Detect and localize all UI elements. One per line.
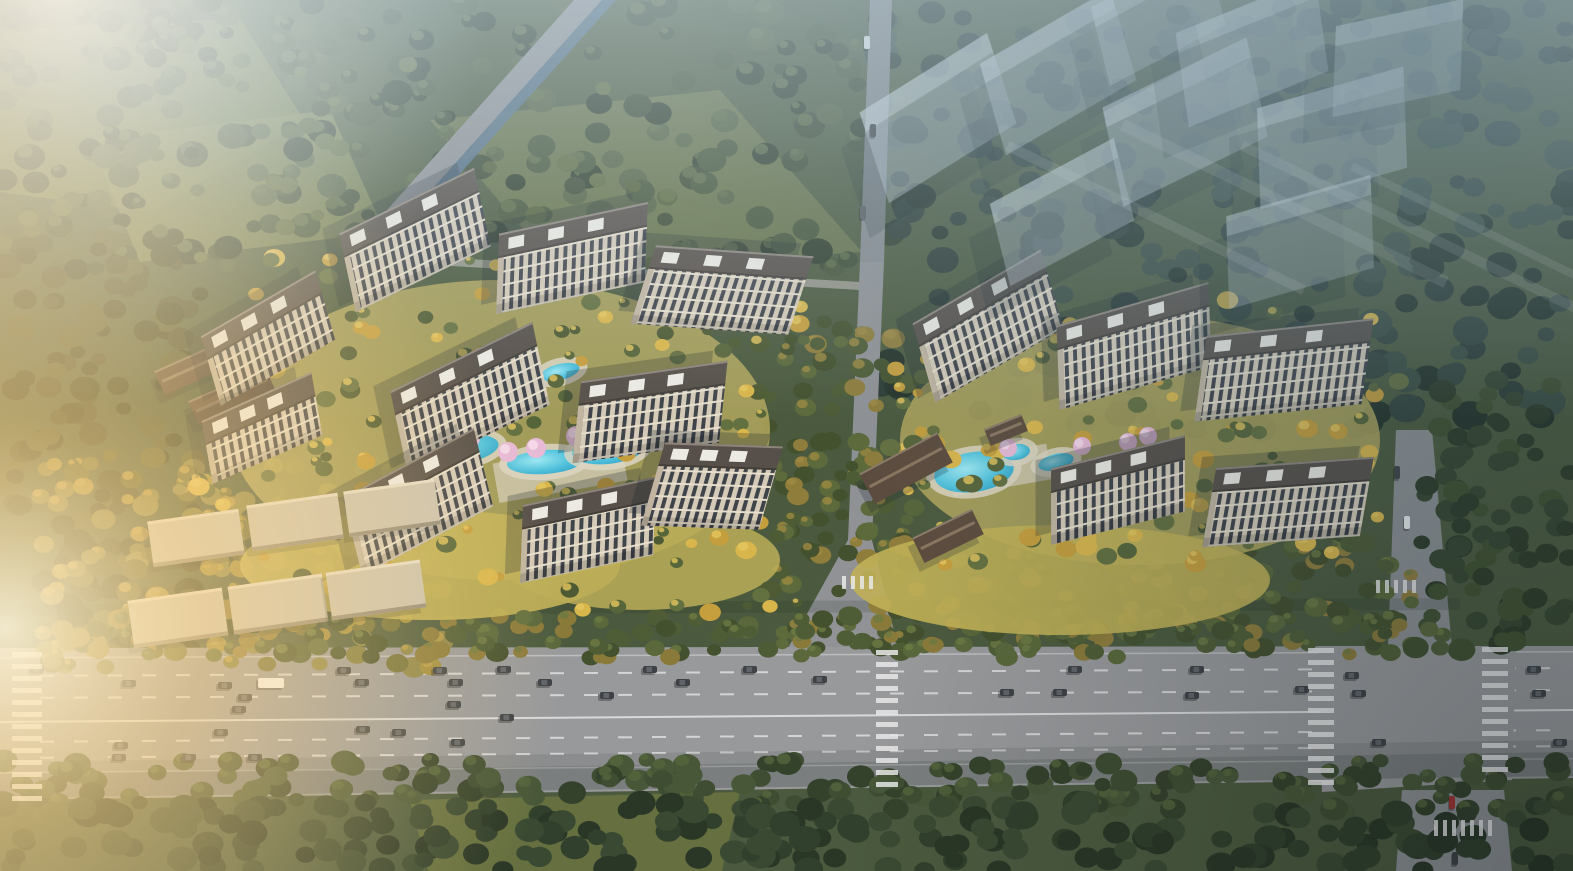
tree (344, 816, 373, 840)
lane-dash (74, 697, 88, 699)
zebra-stripe (12, 748, 42, 753)
tree (415, 852, 434, 867)
tree-highlight (963, 476, 974, 485)
tree (581, 294, 600, 310)
car-roof (1004, 690, 1010, 695)
zebra-stripe (1308, 768, 1334, 773)
zebra-stripe (1308, 756, 1334, 761)
tree (746, 206, 774, 229)
lane-dash (176, 740, 190, 742)
lane-dash (584, 737, 598, 739)
tree (7, 496, 31, 516)
lane-dash (1094, 733, 1108, 735)
tree-highlight (371, 93, 379, 99)
tree (288, 793, 304, 806)
zebra-stripe (1461, 820, 1465, 836)
zebra-stripe (12, 664, 42, 669)
tree (258, 657, 276, 672)
tree (515, 610, 533, 625)
tree-highlight (1020, 635, 1032, 645)
tree-highlight (402, 645, 408, 650)
tree (383, 9, 403, 25)
tree (742, 601, 752, 609)
lane-dash (142, 674, 156, 676)
tree (758, 641, 778, 657)
lane-dash (482, 753, 496, 755)
tree (6, 849, 26, 865)
tree (121, 494, 133, 504)
tree-highlight (1019, 358, 1028, 365)
tree (91, 353, 106, 365)
tree-highlight (957, 778, 968, 787)
car-roof (817, 677, 823, 682)
tree-highlight (52, 165, 60, 172)
car-roof (501, 667, 507, 672)
tree-highlight (1355, 413, 1362, 419)
tree (171, 10, 192, 27)
tree (660, 189, 677, 203)
tree (645, 640, 665, 656)
tree (505, 174, 525, 191)
tree (1522, 588, 1547, 609)
tree (236, 81, 250, 92)
car-roof (1057, 690, 1063, 695)
tree (1538, 327, 1555, 341)
tree (153, 77, 176, 96)
lane-dash (1128, 691, 1142, 693)
tree (1527, 448, 1544, 462)
tree-highlight (1022, 645, 1030, 652)
tree-highlight (782, 343, 790, 349)
lane-dash (1026, 670, 1040, 672)
tree (555, 624, 573, 639)
lane-dash (346, 695, 360, 697)
tree (92, 144, 122, 168)
tree-highlight (1235, 422, 1245, 430)
tree (1358, 582, 1377, 598)
tree-highlight (675, 755, 689, 766)
tree-highlight (122, 789, 131, 796)
lane-dash (278, 674, 292, 676)
tree (1453, 316, 1488, 345)
tree-highlight (693, 173, 707, 184)
tree (206, 648, 222, 661)
tree (677, 778, 696, 794)
tree-highlight (851, 39, 859, 45)
tree (13, 290, 37, 310)
zebra-stripe (1482, 755, 1508, 760)
tree-highlight (556, 326, 564, 332)
tree (1503, 87, 1534, 112)
lane-dash (210, 674, 224, 676)
tree-highlight (879, 540, 887, 547)
tree-highlight (256, 640, 265, 647)
tree (103, 300, 126, 319)
lane-dash (856, 735, 870, 737)
tree (105, 255, 128, 274)
tree-highlight (440, 126, 448, 133)
tree-highlight (163, 67, 176, 77)
tree (714, 52, 735, 70)
zebra-stripe (1443, 820, 1447, 836)
tree (1420, 622, 1439, 637)
tree-highlight (1421, 770, 1429, 777)
tree-highlight (163, 174, 173, 182)
tree (675, 133, 693, 147)
tree (1508, 211, 1530, 229)
tree-highlight (432, 333, 438, 338)
tree-highlight (944, 764, 954, 772)
zebra-stripe (1376, 580, 1380, 593)
tree (657, 213, 673, 226)
tree (557, 154, 579, 172)
tree (660, 793, 684, 813)
tree (376, 835, 400, 854)
tree (746, 834, 772, 855)
tree-highlight (75, 479, 85, 487)
lane-dash (754, 735, 768, 737)
tree-highlight (970, 554, 980, 562)
tree (330, 140, 350, 157)
car-roof (396, 730, 402, 735)
tree (246, 220, 261, 232)
tree (775, 471, 788, 481)
tree (371, 815, 394, 834)
tree-highlight (1307, 598, 1319, 608)
tree (1218, 428, 1235, 442)
tree-highlight (797, 400, 808, 409)
tree-highlight (306, 628, 316, 636)
tree-highlight (50, 794, 61, 803)
tree (1466, 612, 1488, 630)
tree (811, 512, 829, 527)
zebra-stripe (1452, 820, 1456, 836)
tree-highlight (51, 648, 58, 654)
tree (1487, 413, 1506, 428)
car-roof (218, 730, 224, 735)
tree (602, 150, 624, 168)
tree-highlight (396, 785, 407, 794)
tree (1462, 178, 1485, 197)
zebra-stripe (1482, 671, 1508, 676)
tree (1128, 397, 1147, 413)
tree (57, 632, 79, 650)
car-roof (437, 668, 443, 673)
tree (1056, 541, 1077, 558)
tree (769, 811, 800, 836)
tree (823, 849, 846, 868)
tree-highlight (1269, 615, 1278, 622)
car-roof (604, 693, 610, 698)
tree (1357, 768, 1381, 788)
tree-highlight (49, 496, 59, 504)
zebra-stripe (1308, 648, 1334, 653)
tree (1424, 128, 1449, 149)
lane-dash (1026, 733, 1040, 735)
zebra-stripe (876, 674, 898, 679)
tree-highlight (1344, 649, 1351, 655)
tree (36, 376, 62, 397)
tree-highlight (355, 631, 364, 638)
lane-dash (720, 736, 734, 738)
tree-highlight (1383, 611, 1394, 620)
tree (834, 470, 848, 481)
tree-highlight (105, 48, 120, 60)
tree (422, 627, 440, 641)
tree (816, 103, 843, 125)
tree (291, 21, 313, 39)
rooftop-structure (1223, 472, 1241, 484)
lane-dash (176, 674, 190, 676)
tree (194, 252, 207, 263)
tree (61, 837, 87, 859)
tree-highlight (280, 755, 291, 764)
tree-highlight (226, 643, 234, 649)
car-roof (1349, 673, 1355, 678)
tree-highlight (719, 190, 728, 197)
tree (817, 315, 833, 328)
lane-dash (550, 694, 564, 696)
tree (793, 382, 813, 398)
tree (852, 633, 872, 650)
tree (728, 337, 741, 348)
tree-highlight (1552, 791, 1564, 800)
tree-highlight (150, 766, 159, 774)
tree (57, 325, 84, 347)
tree (1415, 476, 1439, 495)
tree (743, 626, 757, 638)
tree (192, 287, 208, 300)
tree-highlight (418, 80, 428, 88)
tree-highlight (903, 787, 914, 796)
tree-highlight (359, 28, 368, 35)
tree (714, 344, 731, 358)
lane-dash (176, 696, 190, 698)
lane-dash (686, 672, 700, 674)
zebra-stripe (876, 662, 898, 667)
tree (314, 838, 342, 861)
tree (927, 247, 959, 273)
tree-highlight (1190, 551, 1197, 556)
tree (1026, 766, 1049, 785)
lane-dash (890, 671, 904, 673)
tree-highlight (586, 46, 595, 53)
lane-dash (312, 695, 326, 697)
tree-highlight (905, 644, 914, 651)
tree (87, 640, 109, 658)
lane-dash (550, 672, 564, 674)
tree-highlight (640, 754, 648, 761)
tree (1541, 377, 1561, 394)
tree (477, 568, 498, 585)
tree (793, 218, 820, 240)
tree (810, 337, 825, 350)
lane-dash (788, 671, 802, 673)
tree (463, 843, 489, 864)
tree-highlight (351, 142, 361, 150)
tree-highlight (436, 112, 445, 119)
tree-highlight (54, 565, 63, 572)
tree (1378, 627, 1393, 639)
tree (198, 846, 222, 865)
zebra-stripe (1434, 820, 1438, 836)
tree (515, 818, 544, 842)
tree (1076, 763, 1093, 777)
tree (237, 820, 267, 845)
lane-dash (890, 693, 904, 695)
tree-highlight (873, 614, 884, 622)
tree-highlight (68, 561, 78, 569)
tree (585, 122, 610, 143)
lane-dash (652, 694, 666, 696)
car (1449, 796, 1455, 809)
tree-highlight (515, 646, 522, 652)
tree (46, 362, 66, 378)
tree (233, 646, 247, 658)
tree-highlight (689, 613, 697, 620)
tree (833, 489, 848, 501)
lane-dash (1264, 731, 1278, 733)
tree (1343, 817, 1367, 837)
tree-highlight (991, 773, 1004, 783)
tree (424, 825, 451, 847)
lane-dash (244, 739, 258, 741)
car-roof (455, 740, 461, 745)
zebra-stripe (1308, 744, 1334, 749)
tree (131, 796, 148, 810)
rooftop-structure (1214, 339, 1231, 352)
tree (79, 422, 108, 445)
tree-highlight (785, 66, 797, 76)
tree (133, 495, 159, 516)
tree (657, 326, 674, 340)
zebra-stripe (876, 710, 898, 715)
tree-highlight (994, 475, 1002, 481)
tree (96, 660, 114, 675)
lane-dash (40, 675, 54, 677)
tree (589, 173, 606, 187)
zebra-stripe (1308, 708, 1334, 713)
tree (1352, 845, 1381, 868)
tree (1517, 434, 1535, 448)
lane-dash (652, 736, 666, 738)
car-roof (1189, 693, 1195, 698)
tree-highlight (272, 33, 285, 43)
lane-dash (856, 693, 870, 695)
tree (1544, 204, 1564, 220)
tree-highlight (254, 185, 267, 196)
tree (1428, 584, 1448, 600)
zebra-stripe (1482, 647, 1508, 652)
tree-highlight (610, 755, 624, 766)
tree-highlight (179, 465, 189, 473)
residential-tower (625, 430, 786, 530)
tree (752, 588, 770, 602)
tree (12, 829, 35, 848)
tree (564, 177, 585, 194)
tree (1497, 599, 1524, 621)
tree (935, 836, 960, 857)
tree (1287, 580, 1303, 593)
tree-highlight (590, 639, 600, 647)
lane-dash (924, 670, 938, 672)
tree (838, 545, 858, 561)
tree (15, 370, 35, 387)
car-roof (1194, 667, 1200, 672)
lane-dash (1230, 732, 1244, 734)
tree-highlight (739, 62, 753, 73)
car (860, 206, 866, 219)
zebra-stripe (12, 676, 42, 681)
tree-highlight (438, 537, 448, 545)
zebra-stripe (12, 724, 42, 729)
tree-highlight (815, 353, 827, 362)
lane-dash (516, 672, 530, 674)
lane-dash (108, 740, 122, 742)
tree (655, 339, 670, 351)
lane-dash (108, 697, 122, 699)
zebra-stripe (12, 700, 42, 705)
tree (626, 791, 655, 815)
car (870, 124, 876, 137)
tree-highlight (343, 378, 352, 385)
tree-highlight (791, 149, 799, 155)
tree-highlight (599, 311, 607, 317)
tree (1373, 754, 1389, 767)
tree (1451, 346, 1468, 360)
tree-highlight (14, 67, 27, 77)
tree (299, 819, 327, 842)
tree (139, 133, 161, 151)
tree (586, 93, 612, 114)
tree (83, 588, 101, 603)
tree (482, 161, 497, 173)
tree-highlight (1177, 626, 1185, 632)
tree (478, 799, 497, 814)
tree (1389, 394, 1424, 423)
lane-dash (1060, 733, 1074, 735)
tree (214, 236, 243, 259)
zebra-stripe (1394, 580, 1398, 593)
tree (1479, 387, 1498, 402)
zebra-stripe (1482, 731, 1508, 736)
zebra-stripe (876, 686, 898, 691)
rooftop-structure (670, 449, 689, 460)
tree (1070, 791, 1099, 815)
tree (298, 118, 318, 134)
tree-highlight (1129, 530, 1137, 536)
tree (1452, 518, 1472, 534)
tree (15, 525, 37, 543)
tree-highlight (853, 359, 865, 369)
tree-highlight (148, 588, 160, 598)
car-roof (118, 743, 124, 748)
zebra-stripe (1479, 820, 1483, 836)
lane-dash (448, 754, 462, 756)
lane-dash (788, 735, 802, 737)
tree (362, 649, 380, 664)
tree (954, 10, 972, 25)
lane-dash (380, 695, 394, 697)
tree (386, 654, 408, 672)
zebra-stripe (12, 736, 42, 741)
tree-highlight (119, 582, 131, 592)
tree (141, 447, 167, 468)
rooftop-structure (1308, 466, 1326, 478)
tree-highlight (884, 330, 896, 339)
tree (261, 470, 276, 482)
tree-highlight (1311, 550, 1321, 558)
